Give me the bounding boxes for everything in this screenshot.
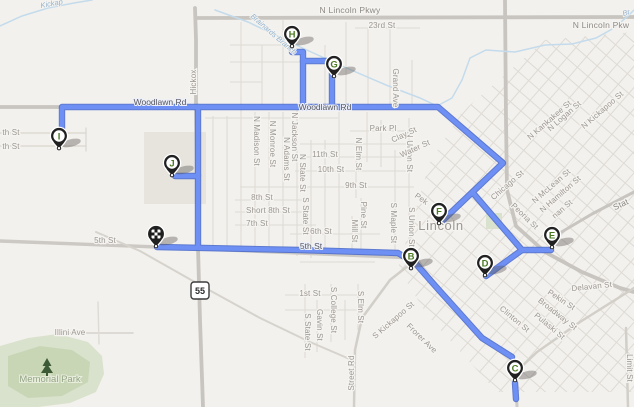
park-label: Memorial Park — [19, 374, 80, 385]
street-label: th St — [2, 128, 20, 137]
street-label: Hickox — [189, 70, 198, 95]
street-label: N Lincoln Pkw — [573, 20, 630, 30]
marker-letter-I: I — [58, 132, 61, 143]
street-label: S State St — [303, 313, 312, 351]
street-label: th St — [2, 142, 20, 151]
street-label: Illini Ave — [55, 328, 86, 337]
map-canvas[interactable]: N Lincoln PkwyN Lincoln Pkw23rd StWoodla… — [0, 0, 634, 407]
street-label: N Monroe St — [268, 121, 277, 168]
street-label: Grand Ave — [391, 68, 400, 107]
street-label: N Elm St — [354, 138, 363, 171]
street-label: Woodlawn Rd — [299, 102, 352, 112]
street-label: 6th St — [310, 227, 332, 236]
street-label: S Union St — [407, 207, 416, 247]
street-label: 8th St — [251, 193, 273, 202]
street-label: 10th St — [318, 165, 345, 174]
street-label: Gavin St — [315, 309, 324, 342]
street-label: N Lincoln Pkwy — [320, 5, 381, 15]
street-label: S Maple St — [389, 203, 398, 244]
street-label: N Madison St — [252, 116, 261, 166]
street-label: S Elm St — [356, 291, 365, 324]
svg-text:55: 55 — [195, 286, 205, 296]
street-label: 1st St — [299, 289, 321, 298]
street-label: Park Pl — [370, 124, 397, 133]
route-segment-c-stub — [515, 383, 516, 399]
street-label: S State St — [301, 197, 310, 235]
street-label: S College St — [329, 287, 338, 334]
street-label: Pine St — [359, 202, 368, 229]
street-label: N Jackson St — [290, 113, 299, 163]
street-label: 5th St — [94, 236, 116, 245]
street-label: N State St — [298, 154, 307, 193]
marker-letter-G: G — [330, 60, 337, 71]
street-label: N Adams St — [282, 137, 291, 181]
street-label: 5th St — [300, 241, 323, 251]
street-label: 11th St — [312, 150, 338, 159]
street-label: Short 8th St — [246, 206, 291, 215]
marker-letter-J: J — [169, 159, 174, 170]
marker-letter-H: H — [289, 30, 296, 41]
street-label: 7th St — [246, 219, 268, 228]
marker-letter-D: D — [482, 259, 489, 270]
street-label: Mill St — [350, 220, 359, 243]
marker-letter-F: F — [436, 207, 442, 218]
route-55-shield: 55 — [191, 282, 209, 299]
marker-letter-C: C — [512, 364, 519, 375]
street-label: Street Rd — [347, 355, 356, 390]
street-label: Limit St — [625, 354, 634, 382]
street-label: 9th St — [345, 181, 367, 190]
marker-letter-B: B — [408, 252, 415, 263]
marker-letter-E: E — [549, 231, 555, 242]
map-view: N Lincoln PkwyN Lincoln Pkw23rd StWoodla… — [0, 0, 634, 407]
street-label: 23rd St — [369, 21, 396, 30]
street-label: Woodlawn Rd — [134, 97, 187, 107]
